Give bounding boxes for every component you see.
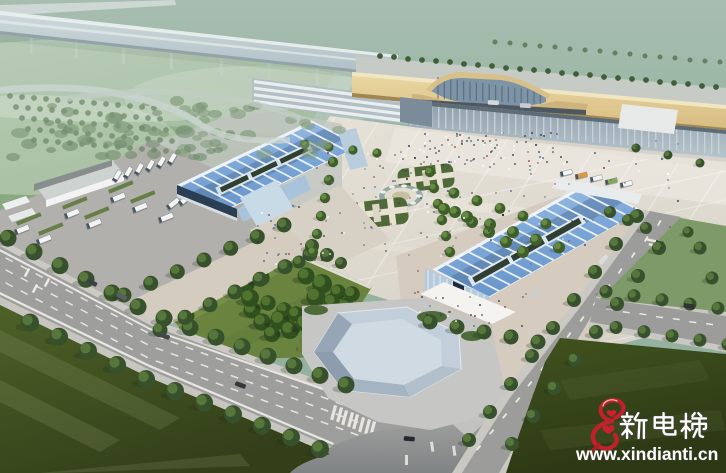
svg-text:www.xindianti.cn: www.xindianti.cn [575, 444, 718, 464]
